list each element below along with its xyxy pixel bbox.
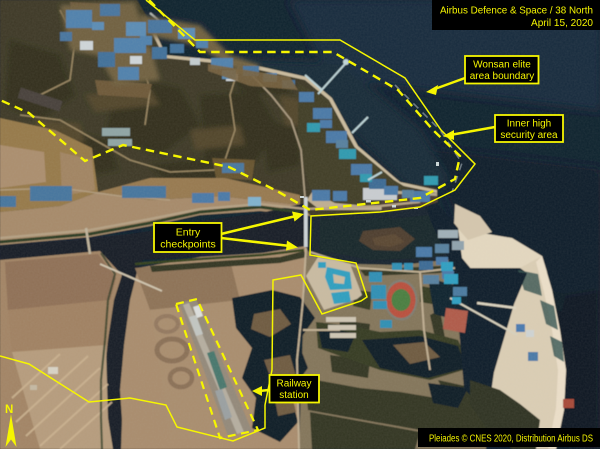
svg-text:N: N bbox=[5, 404, 13, 416]
svg-text:Wonsan elite: Wonsan elite bbox=[473, 60, 531, 71]
svg-text:Railway: Railway bbox=[276, 379, 311, 390]
svg-text:Airbus Defence & Space / 38 No: Airbus Defence & Space / 38 North bbox=[440, 5, 593, 17]
svg-text:area boundary: area boundary bbox=[470, 71, 535, 82]
svg-text:Pleiades © CNES 2020, Distribu: Pleiades © CNES 2020, Distribution Airbu… bbox=[429, 434, 593, 445]
svg-text:checkpoints: checkpoints bbox=[160, 239, 215, 251]
svg-text:security area: security area bbox=[500, 130, 558, 141]
svg-text:station: station bbox=[279, 390, 308, 401]
svg-text:Inner high: Inner high bbox=[507, 119, 551, 130]
svg-text:Entry: Entry bbox=[176, 227, 201, 239]
svg-text:April 15, 2020: April 15, 2020 bbox=[531, 17, 593, 29]
